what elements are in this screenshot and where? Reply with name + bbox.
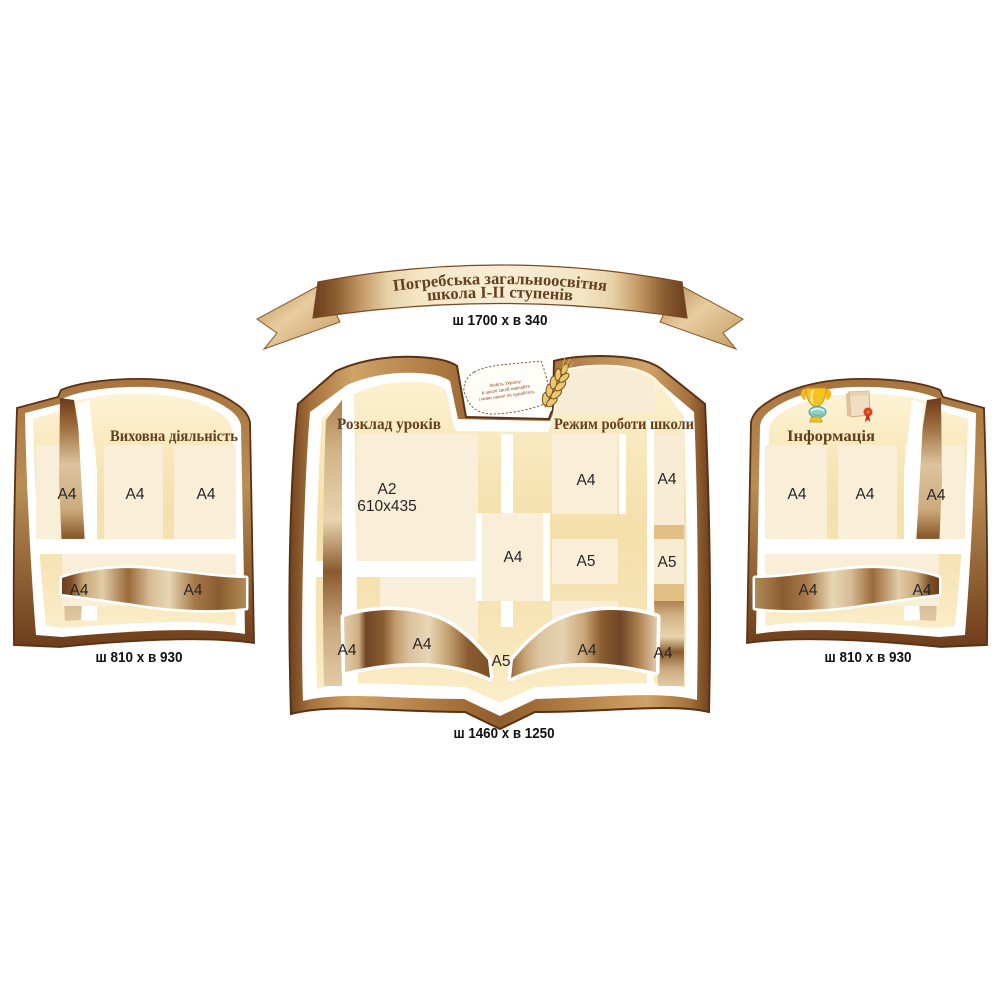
svg-text:А5: А5 [577, 553, 596, 570]
svg-text:А4: А4 [799, 582, 818, 599]
svg-text:А4: А4 [58, 486, 77, 503]
svg-text:Режим роботи школи: Режим роботи школи [554, 416, 694, 433]
svg-text:Розклад уроків: Розклад уроків [337, 416, 441, 433]
svg-text:А4: А4 [788, 486, 807, 503]
svg-text:А4: А4 [654, 645, 673, 662]
svg-text:Інформація: Інформація [787, 428, 875, 445]
svg-text:А4: А4 [504, 549, 523, 566]
svg-text:ш 810 х в 930: ш 810 х в 930 [825, 650, 912, 666]
svg-text:А4: А4 [927, 487, 946, 504]
svg-text:А4: А4 [126, 486, 145, 503]
svg-text:ш 1700 х в 340: ш 1700 х в 340 [453, 313, 548, 329]
svg-text:А5: А5 [658, 554, 677, 571]
svg-text:А5: А5 [492, 653, 511, 670]
svg-text:А4: А4 [578, 642, 597, 659]
svg-text:ш 1460 х в 1250: ш 1460 х в 1250 [454, 726, 555, 742]
svg-text:А4: А4 [413, 636, 432, 653]
svg-text:А4: А4 [577, 472, 596, 489]
svg-text:ш 810 х в 930: ш 810 х в 930 [96, 650, 183, 666]
svg-text:А4: А4 [658, 471, 677, 488]
svg-text:А4: А4 [913, 582, 932, 599]
svg-text:А4: А4 [184, 582, 203, 599]
svg-text:А4: А4 [856, 486, 875, 503]
svg-text:А4: А4 [197, 486, 216, 503]
svg-text:А2: А2 [378, 481, 397, 498]
svg-text:610х435: 610х435 [357, 498, 416, 515]
svg-text:А4: А4 [338, 642, 357, 659]
svg-text:Виховна діяльність: Виховна діяльність [110, 428, 238, 445]
svg-text:А4: А4 [70, 582, 89, 599]
svg-text:школа І-ІІ ступенів: школа І-ІІ ступенів [426, 282, 573, 304]
